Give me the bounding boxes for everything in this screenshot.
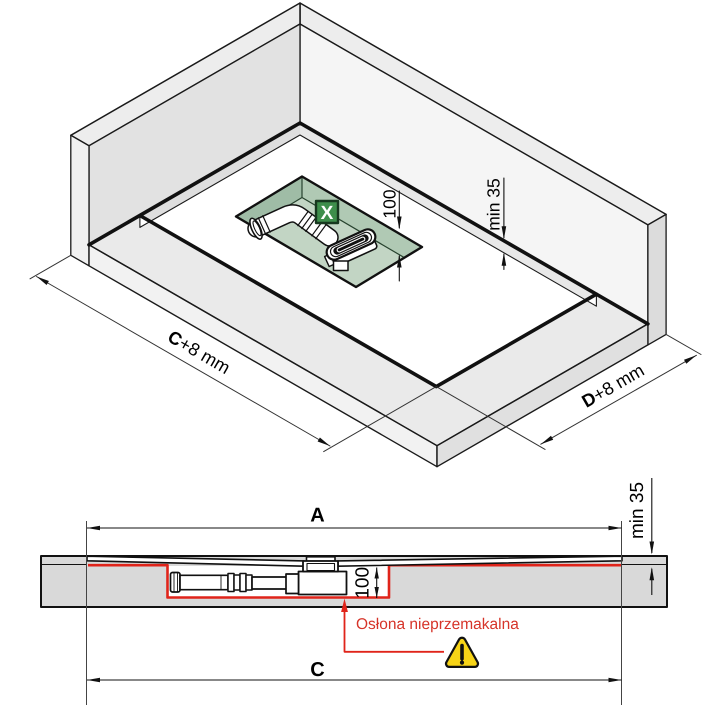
svg-text:min 35: min 35 — [627, 482, 648, 539]
svg-text:100: 100 — [353, 567, 374, 599]
svg-text:Osłona nieprzemakalna: Osłona nieprzemakalna — [356, 616, 519, 633]
svg-text:100: 100 — [380, 189, 400, 218]
svg-text:min 35: min 35 — [484, 178, 504, 231]
svg-text:A: A — [310, 505, 324, 527]
svg-text:X: X — [321, 203, 334, 224]
svg-text:C: C — [310, 659, 324, 681]
